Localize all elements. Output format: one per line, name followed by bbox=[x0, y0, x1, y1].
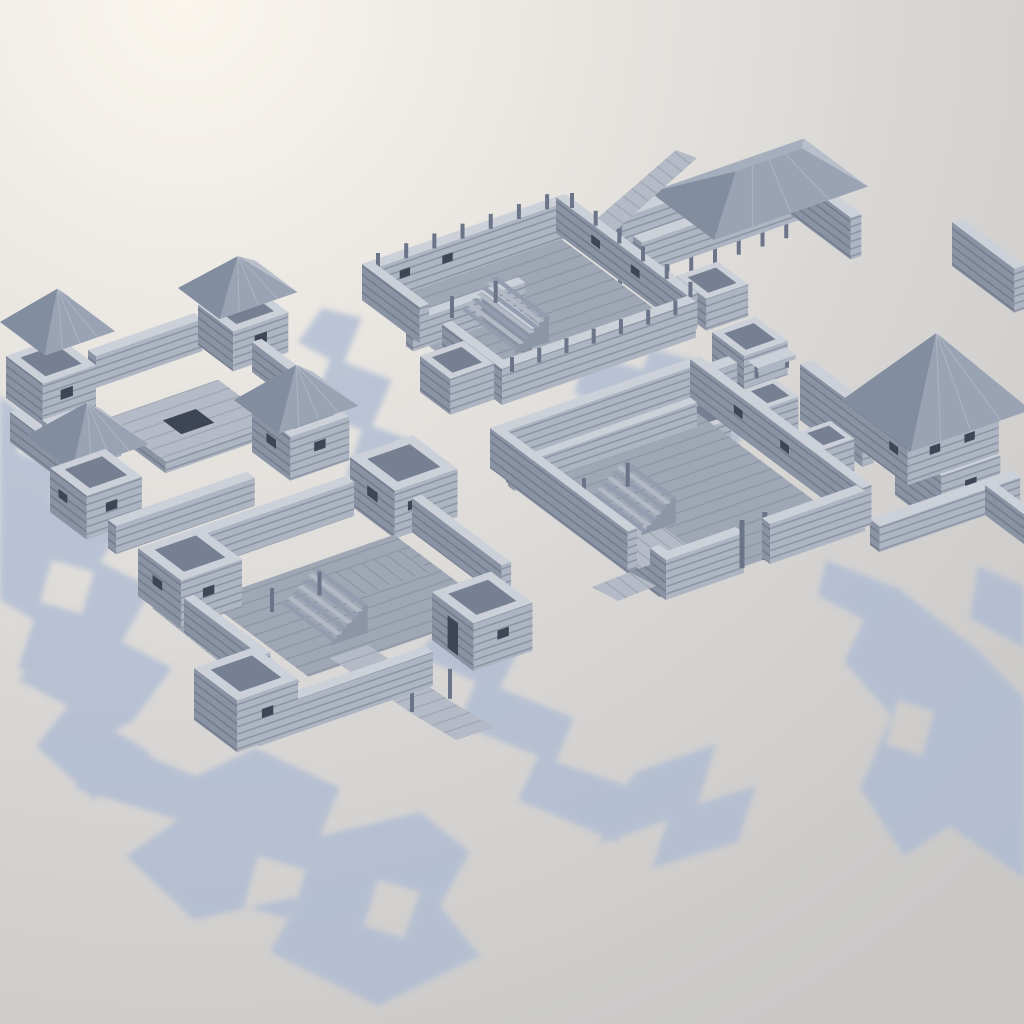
render-canvas bbox=[0, 0, 1024, 1024]
scene-3d-render bbox=[0, 0, 1024, 1024]
